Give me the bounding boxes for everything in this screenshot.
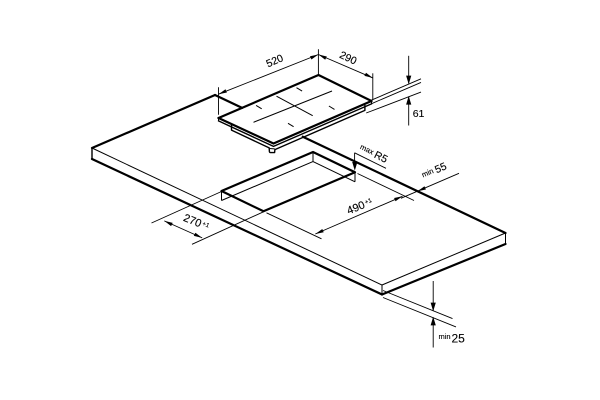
svg-text:61: 61 (413, 108, 425, 120)
svg-text:min: min (439, 332, 451, 341)
svg-text:25: 25 (452, 332, 466, 346)
